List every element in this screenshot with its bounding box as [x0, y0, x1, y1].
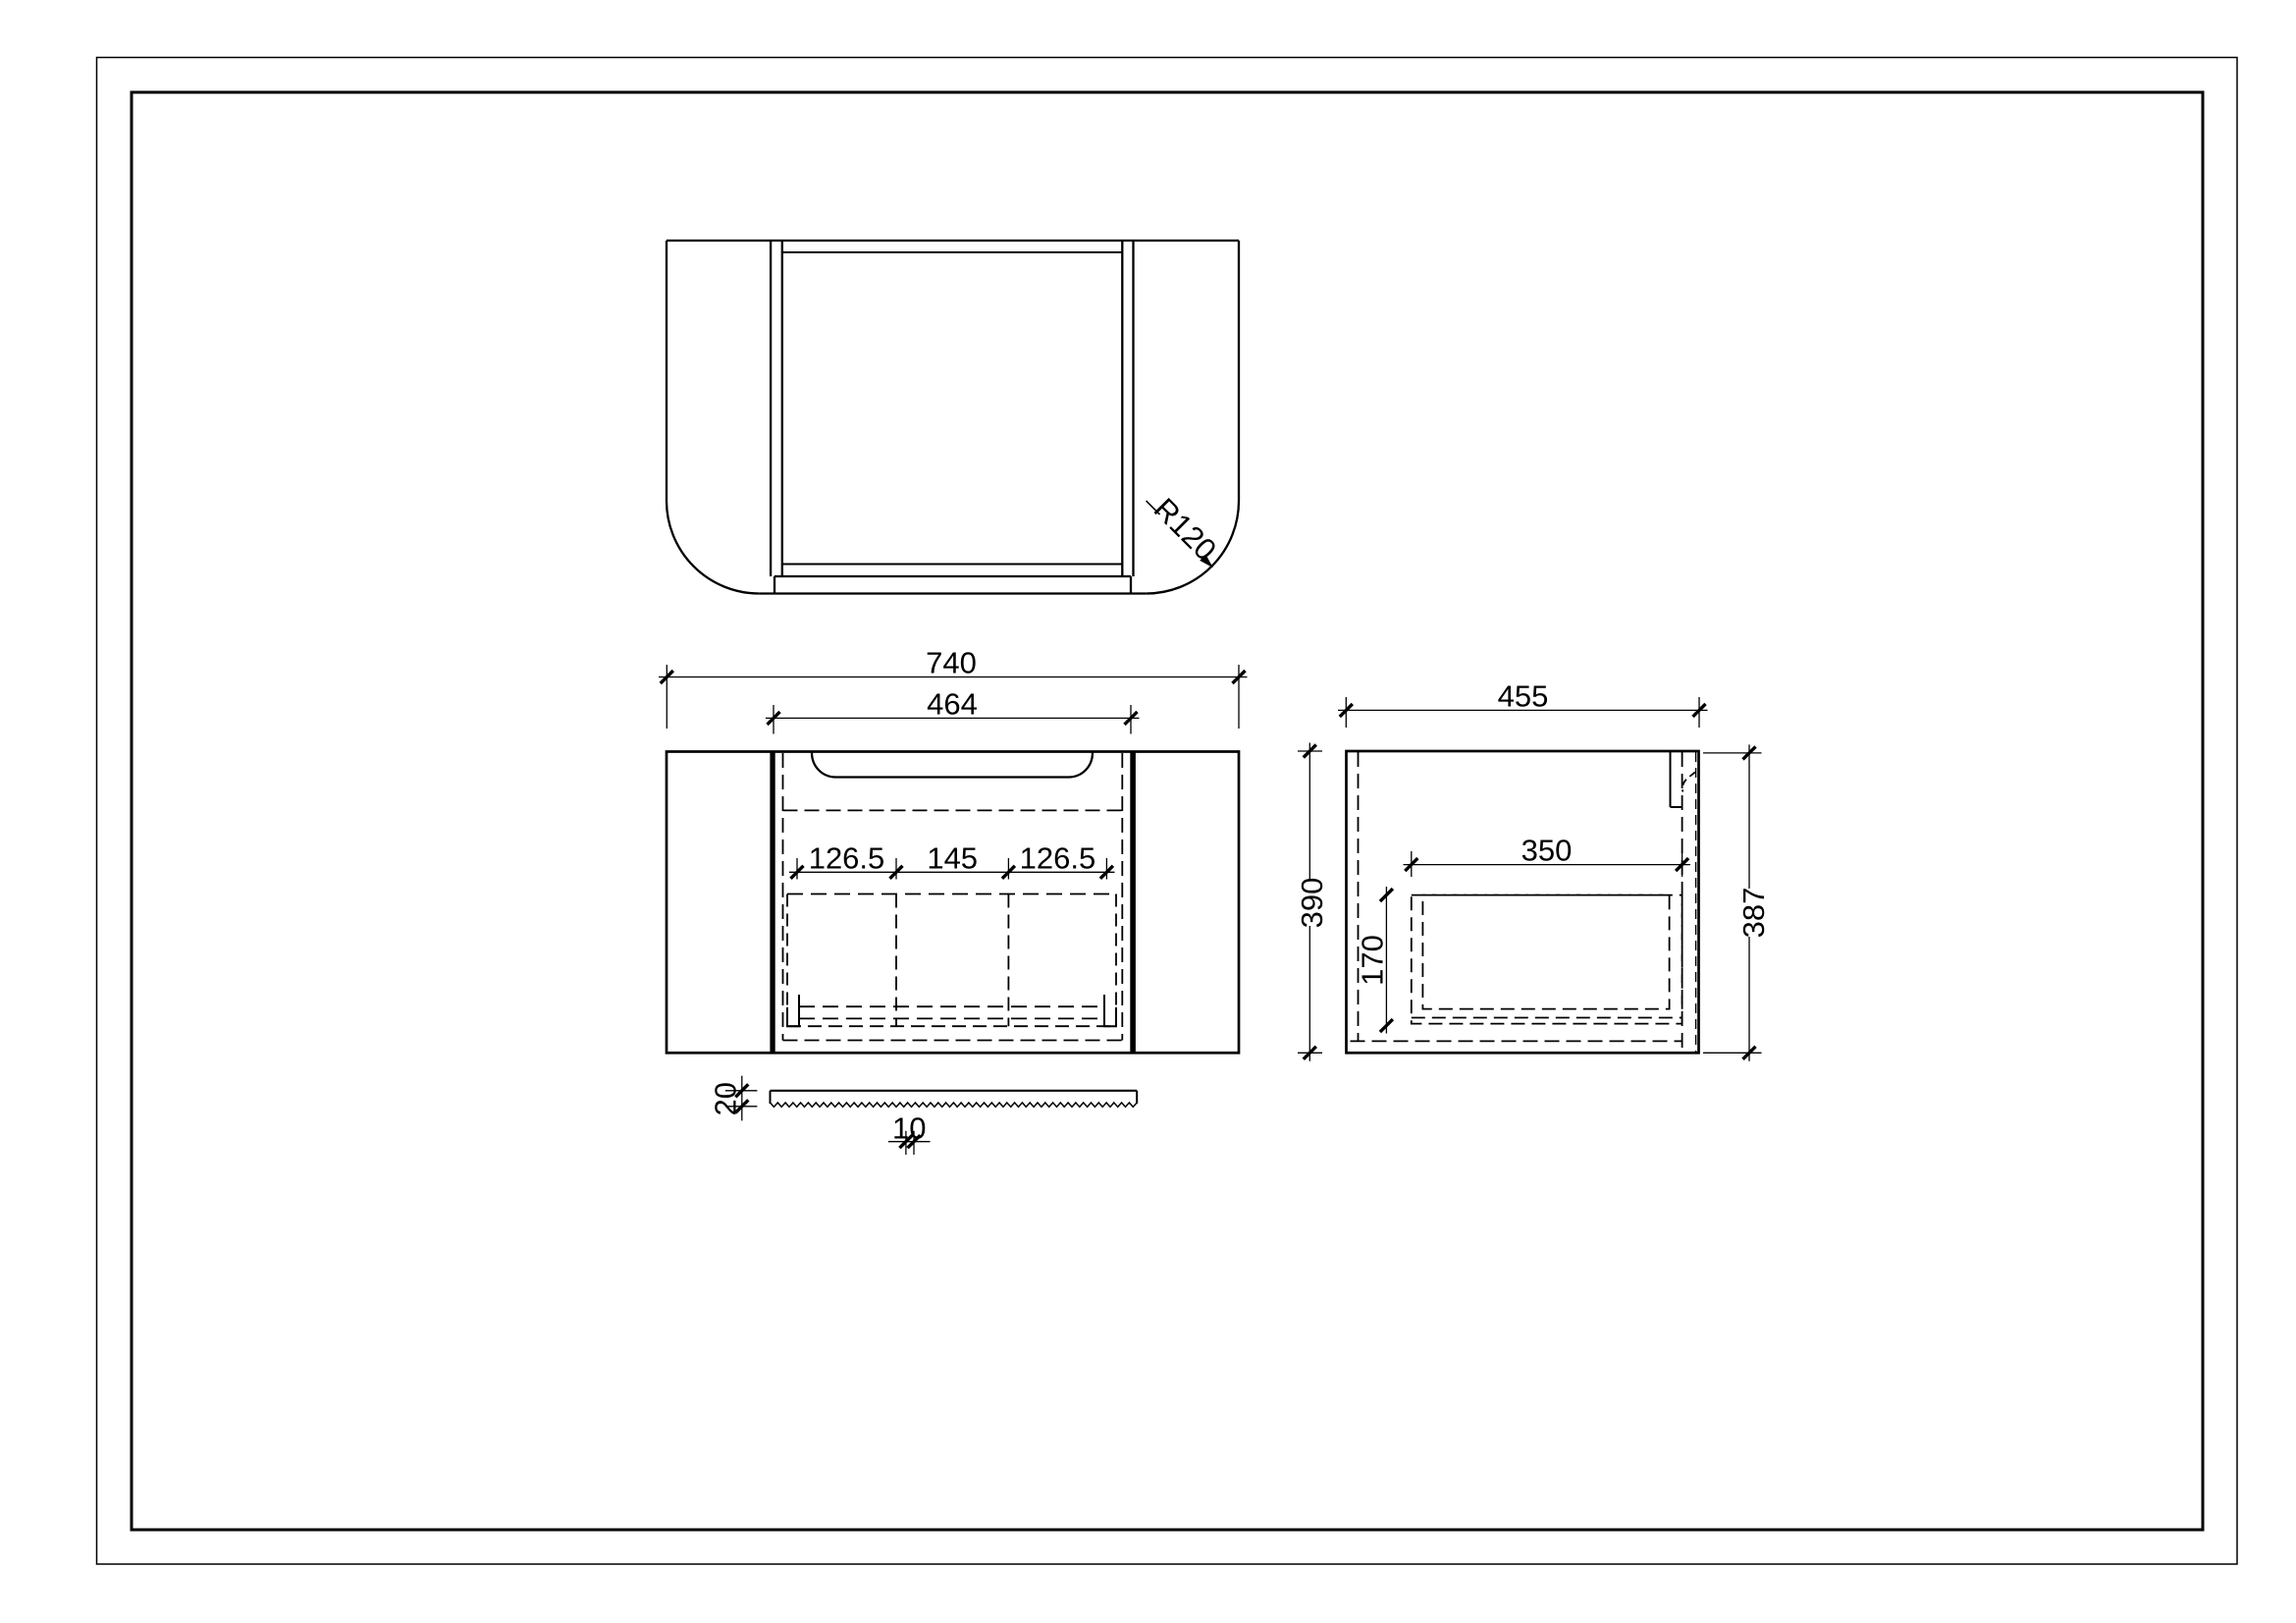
- svg-text:126.5: 126.5: [1020, 840, 1096, 875]
- svg-text:464: 464: [927, 687, 978, 722]
- svg-text:145: 145: [927, 840, 978, 875]
- svg-text:126.5: 126.5: [809, 840, 885, 875]
- svg-text:10: 10: [892, 1111, 926, 1146]
- svg-text:387: 387: [1736, 888, 1771, 939]
- svg-text:390: 390: [1295, 878, 1329, 929]
- svg-text:20: 20: [709, 1082, 743, 1115]
- svg-text:455: 455: [1498, 679, 1549, 714]
- svg-text:740: 740: [926, 646, 977, 680]
- svg-text:350: 350: [1522, 834, 1573, 868]
- svg-text:170: 170: [1356, 935, 1390, 986]
